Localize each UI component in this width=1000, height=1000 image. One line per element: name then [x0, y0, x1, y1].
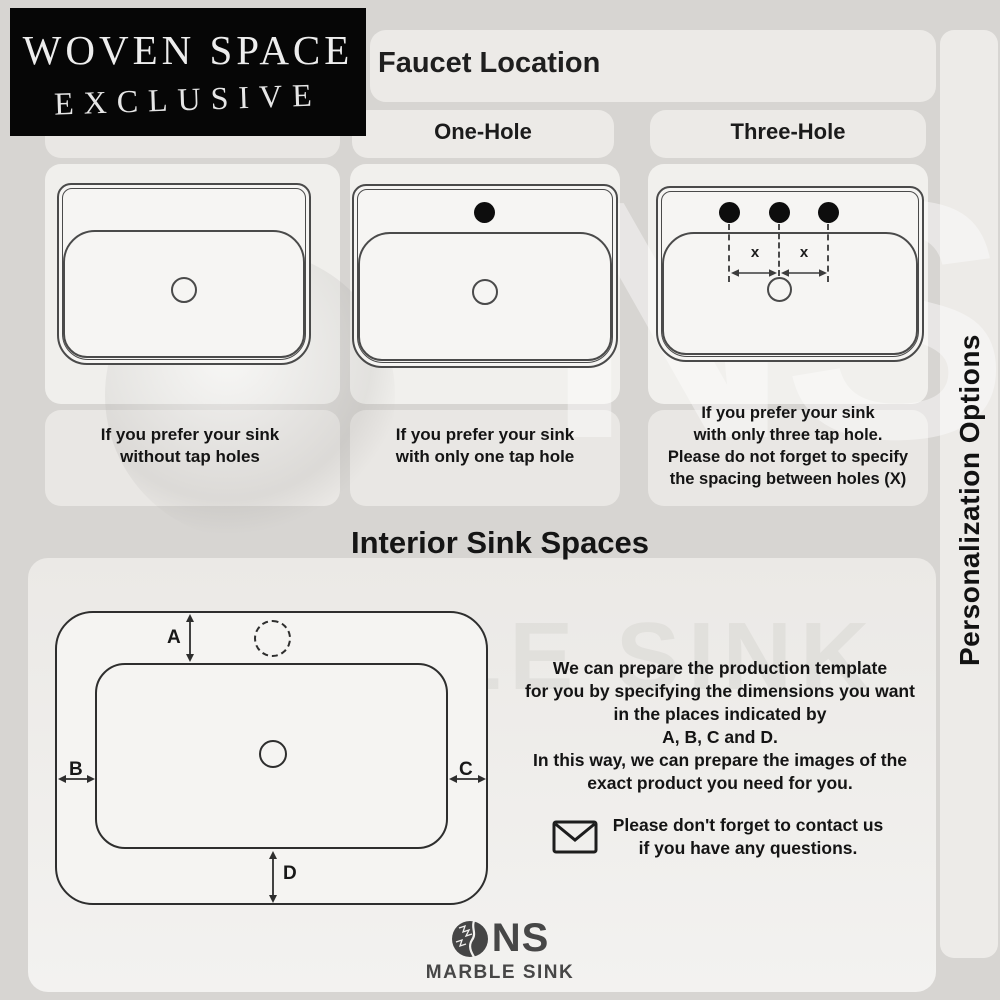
drain-circle [259, 740, 287, 768]
caption-one-hole: If you prefer your sink with only one ta… [352, 424, 618, 468]
one-hole-label: One-Hole [352, 119, 614, 145]
footer-logo: NS MARBLE SINK [0, 916, 1000, 984]
caption-no-hole: If you prefer your sink without tap hole… [50, 424, 330, 468]
double-arrow-icon [781, 268, 827, 278]
dimension-a-label: A [167, 627, 181, 649]
brand-line1: WOVEN SPACE [23, 26, 354, 74]
dimension-b-label: B [69, 759, 83, 781]
footer-logo-initials: NS [492, 916, 550, 961]
three-hole-label: Three-Hole [650, 119, 926, 145]
brand-plate: WOVEN SPACE EXCLUSIVE [10, 8, 366, 136]
footer-logo-row: NS [0, 916, 1000, 961]
sink-diagram-one-hole [352, 184, 618, 368]
drain-circle [171, 277, 197, 303]
personalization-options-banner: Personalization Options [940, 0, 1000, 1000]
guide-line [728, 224, 730, 282]
spacing-x-label: x [744, 244, 766, 261]
dimension-a-arrow-icon [184, 614, 196, 662]
contact-note: Please don't forget to contact us if you… [602, 814, 894, 860]
sink-diagram-three-hole: x x [656, 186, 924, 362]
drain-circle [472, 279, 498, 305]
personalization-options-label: Personalization Options [954, 334, 986, 666]
sink-infographic: NS MARBLE SINK WOVEN SPACE EXCLUSIVE Fau… [0, 0, 1000, 1000]
tap-hole [769, 202, 790, 223]
guide-line [778, 224, 780, 276]
tap-hole [818, 202, 839, 223]
faucet-hole-dashed-circle [254, 620, 291, 657]
sink-diagram-no-hole [57, 183, 311, 365]
dimension-c-label: C [459, 759, 473, 781]
spacing-x-label: x [793, 244, 815, 261]
tap-hole [474, 202, 495, 223]
dimension-diagram: A B C D [55, 611, 488, 905]
guide-line [827, 224, 829, 282]
marble-ball-icon [451, 920, 489, 958]
brand-line2: EXCLUSIVE [54, 76, 323, 122]
customization-description: We can prepare the production template f… [500, 657, 940, 795]
caption-three-hole: If you prefer your sink with only three … [645, 402, 931, 490]
footer-logo-name: MARBLE SINK [0, 962, 1000, 984]
tap-hole [719, 202, 740, 223]
drain-circle [767, 277, 792, 302]
faucet-location-title: Faucet Location [378, 47, 600, 80]
envelope-icon [552, 820, 598, 854]
interior-sink-spaces-title: Interior Sink Spaces [290, 525, 710, 561]
double-arrow-icon [731, 268, 777, 278]
dimension-d-arrow-icon [267, 851, 279, 903]
dimension-d-label: D [283, 863, 297, 885]
